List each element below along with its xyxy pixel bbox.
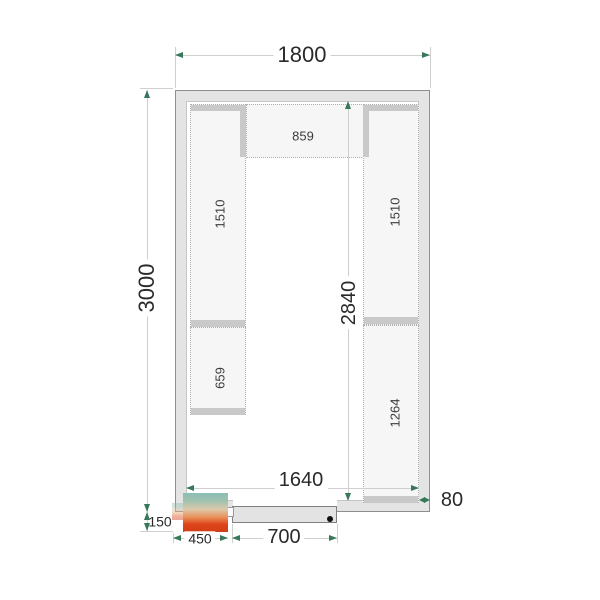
dim-inner-width-label: 1640 [275, 469, 328, 491]
shelf-end-cap [191, 320, 245, 327]
dim-arrow [173, 535, 181, 541]
dim-outer-depth-label: 3000 [135, 260, 159, 317]
shelf-right-lower-label: 1264 [388, 399, 403, 428]
dim-arrow [232, 535, 240, 541]
floor-plan-diagram: 859 1510 659 1510 1264 1800 3000 2840 16… [0, 0, 600, 600]
dim-arrow [144, 504, 150, 512]
shelf-left-upper-label: 1510 [213, 200, 228, 229]
dim-arrow [175, 52, 183, 58]
extension-line [140, 88, 173, 89]
shelf-end-cap [191, 408, 245, 415]
dim-arrow [411, 485, 419, 491]
shelf-end-cap [240, 105, 246, 157]
door-frame-notch [227, 507, 234, 517]
extension-line [430, 47, 431, 88]
cooling-unit [183, 493, 228, 532]
dim-wall-thickness-label: 80 [441, 489, 463, 511]
shelf-end-cap [191, 105, 245, 111]
dim-arrow [345, 493, 351, 501]
dim-arrow [186, 485, 194, 491]
extension-line [140, 531, 173, 532]
door-handle-dot [327, 516, 333, 522]
extension-line [337, 524, 338, 543]
cooling-unit-wall-section [172, 503, 183, 520]
dim-door-width-label: 700 [263, 526, 304, 548]
dim-arrow [424, 497, 430, 503]
shelf-left-lower-label: 659 [213, 367, 228, 389]
dim-arrow [329, 535, 337, 541]
dim-arrow [220, 535, 228, 541]
shelf-end-cap [364, 105, 418, 111]
shelf-end-cap [364, 496, 418, 503]
dim-arrow [422, 52, 430, 58]
dim-arrow [144, 90, 150, 98]
dim-inner-depth-label: 2840 [338, 277, 360, 330]
dim-arrow [345, 101, 351, 109]
dim-unit-width-label: 450 [184, 531, 215, 546]
shelf-right-upper-label: 1510 [388, 198, 403, 227]
shelf-top-label: 859 [292, 129, 314, 144]
shelf-end-cap [364, 317, 418, 324]
dim-outer-width-label: 1800 [274, 43, 331, 67]
dim-unit-overhang-label: 150 [148, 514, 171, 529]
door-leaf [232, 506, 337, 523]
shelf-end-cap [363, 105, 369, 157]
